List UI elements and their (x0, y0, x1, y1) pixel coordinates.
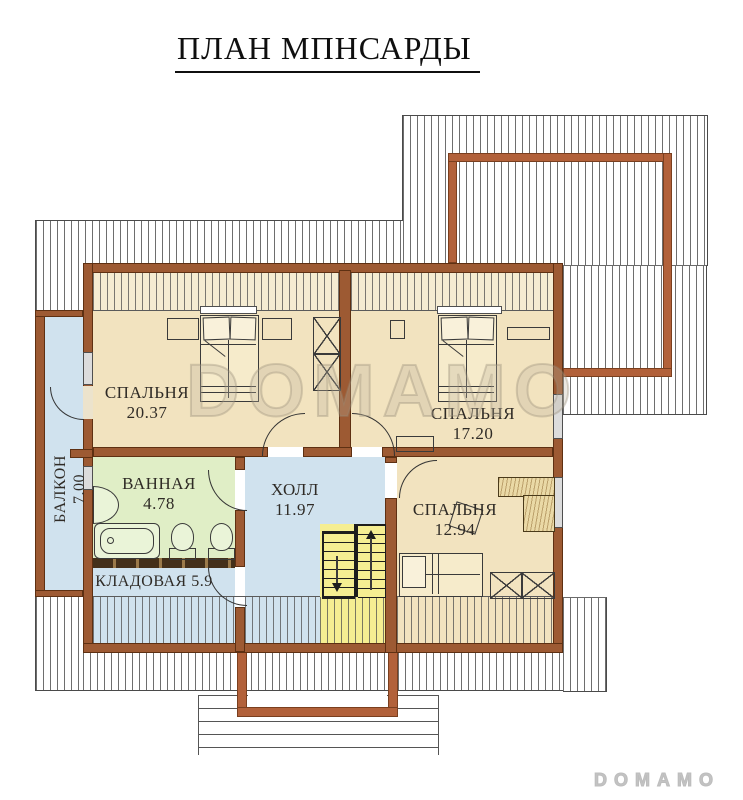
porch-outline-bottom (237, 707, 398, 717)
bath-hall-wall-a (235, 457, 245, 470)
bed-blanket-line (438, 554, 439, 594)
hall-bedrooms-wall-a (93, 447, 268, 457)
bed-centerline (466, 340, 467, 398)
label-bathroom: ВАННАЯ 4.78 (106, 474, 212, 515)
room-name: ВАННАЯ (106, 474, 212, 494)
room-name: ХОЛЛ (245, 480, 345, 500)
eave-right-column (563, 597, 607, 692)
page-title: ПЛАН МПНСАРДЫ (175, 30, 480, 73)
window-bedroom1-knee (200, 306, 257, 314)
room-area: 5.9 (191, 573, 213, 590)
pillow-symbol (230, 317, 257, 341)
pillow-symbol (441, 317, 469, 341)
pillow-symbol (203, 317, 231, 341)
window-bedroom1-balcony (83, 352, 93, 385)
room-area: 20.37 (95, 403, 199, 423)
dormer-outline-right (663, 153, 672, 377)
eave-left-bottom (35, 597, 84, 691)
label-bedroom3: СПАЛЬНЯ 12.94 (402, 500, 508, 541)
storage-low-roof-strip (93, 597, 235, 643)
porch-outline-left (237, 643, 247, 717)
room-name: СПАЛЬНЯ (420, 404, 526, 424)
stair-up-arrow-stem (370, 538, 372, 590)
bedroom3-low-roof-strip (397, 597, 553, 643)
nightstand-symbol (167, 318, 199, 340)
bed-blanket-line (201, 392, 256, 393)
bed-blanket-line (432, 554, 433, 594)
dresser-symbol (507, 327, 550, 340)
hall-low-roof-strip (245, 597, 320, 643)
dormer-outline-bottom (563, 368, 672, 377)
balcony-door-gap (83, 386, 93, 419)
dormer-outline-left (448, 153, 457, 263)
nightstand-symbol (262, 318, 292, 340)
wardrobe-symbol-bedroom3-right (521, 572, 555, 599)
bath-hall-wall-b (235, 510, 245, 567)
pillow-symbol (402, 556, 426, 588)
label-bedroom1: СПАЛЬНЯ 20.37 (95, 383, 199, 424)
bathtub-drain (107, 537, 114, 544)
room-area: 11.97 (245, 500, 345, 520)
room-area: 17.20 (420, 424, 526, 444)
stair-down-arrow-stem (336, 556, 338, 584)
room-area: 7.00 (70, 443, 89, 535)
desk-symbol-horizontal (498, 477, 555, 497)
desk-symbol-vertical (523, 495, 555, 532)
bidet-bowl-symbol (210, 523, 233, 551)
label-hall: ХОЛЛ 11.97 (245, 480, 345, 521)
balcony-wall-west (35, 310, 45, 597)
bed-blanket-line (439, 386, 494, 387)
label-storage: КЛАДОВАЯ 5.9 (92, 572, 216, 591)
exterior-wall-top (83, 263, 563, 273)
wardrobe-symbol-bedroom1-bottom (313, 353, 341, 391)
floor-plan-canvas: СПАЛЬНЯ 20.37 СПАЛЬНЯ 17.20 СПАЛЬНЯ 12.9… (0, 0, 743, 800)
bed-blanket-line (439, 392, 494, 393)
label-bedroom2: СПАЛЬНЯ 17.20 (420, 404, 526, 445)
room-area: 12.94 (402, 520, 508, 540)
wardrobe-symbol-bedroom1-top (313, 317, 341, 355)
eave-bottom-band (83, 652, 563, 691)
stair-down-arrow-icon (332, 583, 342, 592)
nightstand-symbol (390, 320, 405, 339)
bed-centerline (228, 340, 229, 398)
hall-bedrooms-wall-b (303, 447, 352, 457)
room-name: БАЛКОН (51, 443, 70, 535)
hall-bedroom3-wall (385, 498, 397, 653)
brand-logo: DOMAMO (594, 770, 720, 791)
room-name: СПАЛЬНЯ (95, 383, 199, 403)
hall-bedroom3-wall-stub (385, 457, 397, 463)
stair-low-roof-strip (320, 597, 385, 643)
window-bedroom2-knee (437, 306, 502, 314)
porch-outline-right (388, 643, 398, 717)
roof-area-right-lower (563, 265, 707, 415)
balcony-wall-north (35, 310, 83, 317)
room-name: КЛАДОВАЯ (95, 573, 186, 590)
exterior-wall-bottom (83, 643, 563, 653)
window-bedroom2-east (553, 394, 563, 439)
roof-area-top-left (35, 220, 403, 264)
label-balcony: БАЛКОН 7.00 (51, 443, 91, 535)
balcony-wall-south (35, 590, 83, 597)
bed-blanket-line (426, 574, 480, 575)
bath-hall-wall-c (235, 607, 245, 652)
roof-area-left-column (35, 263, 84, 310)
pillow-symbol (468, 317, 495, 341)
room-area: 4.78 (106, 494, 212, 514)
toilet-bowl-symbol (171, 523, 194, 551)
wardrobe-symbol-bedroom3-left (490, 572, 523, 599)
room-name: СПАЛЬНЯ (402, 500, 508, 520)
bed-blanket-line (201, 386, 256, 387)
dormer-outline-top (448, 153, 672, 162)
